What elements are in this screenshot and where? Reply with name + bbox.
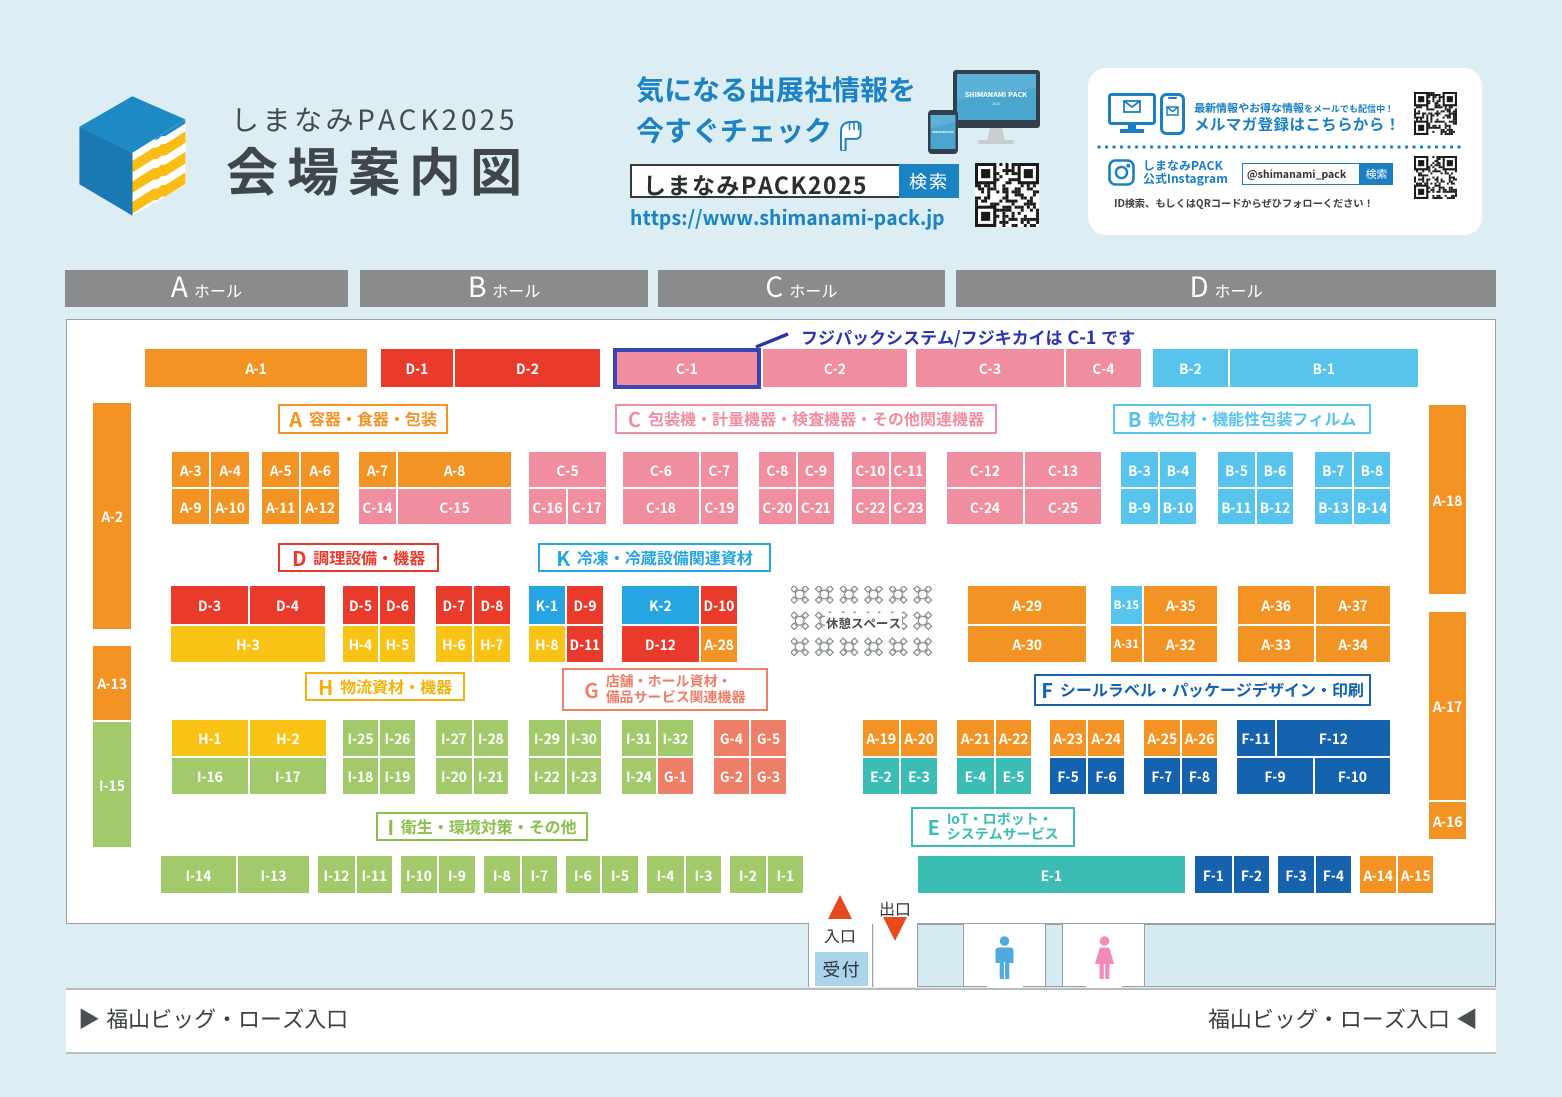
svg-text:SHIMANAMI PACK: SHIMANAMI PACK [965, 90, 1028, 100]
svg-text:SHIMANAMI PACK: SHIMANAMI PACK [932, 130, 955, 134]
svg-text:2025: 2025 [992, 101, 1000, 106]
